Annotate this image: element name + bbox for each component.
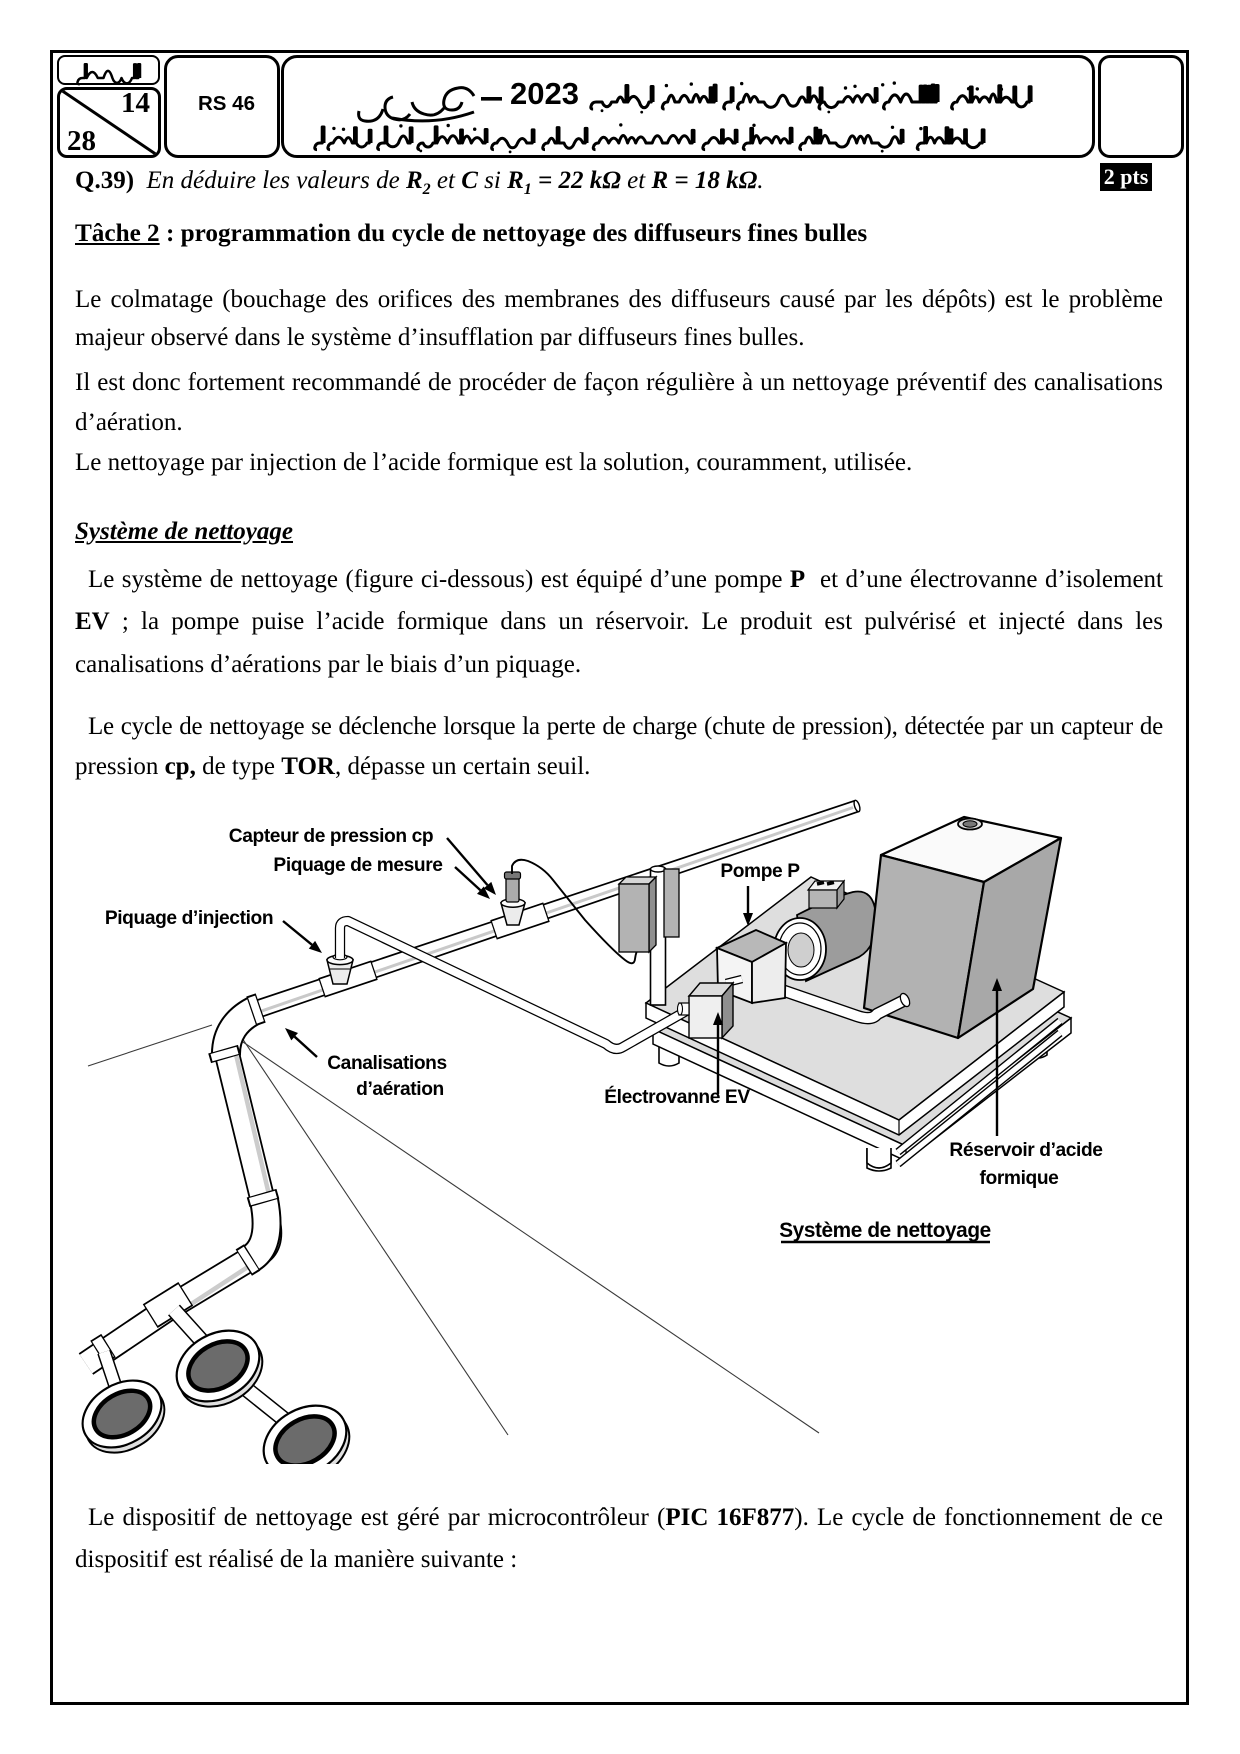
svg-text:Capteur de pression cp: Capteur de pression cp: [229, 826, 433, 847]
svg-text:Réservoir d’acide: Réservoir d’acide: [949, 1140, 1103, 1161]
svg-text:Électrovanne EV: Électrovanne EV: [604, 1086, 750, 1108]
svg-text:Pompe P: Pompe P: [720, 861, 800, 882]
svg-text:formique: formique: [980, 1168, 1060, 1189]
svg-text:Système de nettoyage: Système de nettoyage: [779, 1219, 991, 1242]
svg-text:d’aération: d’aération: [356, 1079, 444, 1100]
svg-text:Canalisations: Canalisations: [327, 1053, 447, 1074]
svg-text:Piquage de mesure: Piquage de mesure: [273, 855, 443, 876]
svg-text:2023: 2023: [510, 76, 579, 111]
svg-text:Piquage d’injection: Piquage d’injection: [105, 908, 273, 929]
